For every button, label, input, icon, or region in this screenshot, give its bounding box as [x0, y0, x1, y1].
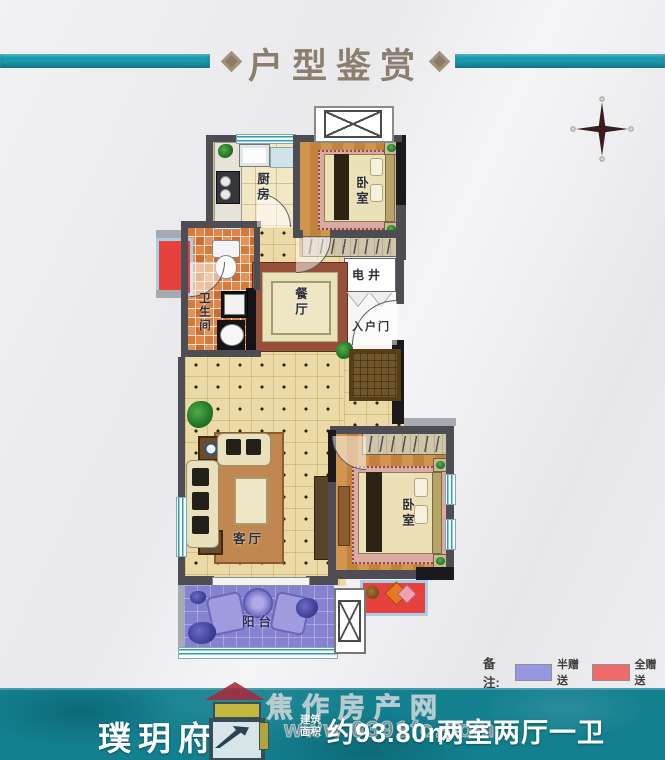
legend-swatch-full: [592, 664, 629, 681]
sofa-cushion: [192, 492, 209, 510]
entry-doormat: [349, 349, 401, 401]
bedroom-window: [445, 474, 456, 505]
wall: [293, 135, 300, 237]
stove-burner: [220, 176, 231, 187]
bedroom-tv-stand: [338, 486, 350, 546]
living-window: [176, 497, 187, 557]
room-label-entry-door: 入户门: [352, 318, 391, 334]
wall: [293, 230, 303, 238]
flue-x-box: [324, 110, 382, 138]
page-title: 户型鉴赏: [246, 38, 426, 89]
pillow: [370, 184, 383, 202]
wall: [181, 221, 261, 228]
washing-machine: [224, 294, 245, 315]
pillow: [414, 478, 428, 497]
room-label-bathroom: 卫生间: [196, 292, 212, 333]
wall: [181, 221, 188, 357]
kitchen-window: [236, 134, 296, 144]
diamond-ornament-right: [429, 51, 450, 72]
legend-note-label: 备注:: [483, 653, 510, 691]
header-teal-bar-left: [0, 54, 210, 68]
bed-headboard: [432, 472, 442, 554]
logo-bar: [213, 702, 261, 719]
bed-runner: [334, 154, 349, 220]
balcony-window: [178, 647, 338, 659]
pillow: [370, 158, 383, 176]
wall: [328, 482, 336, 582]
flue-x-box: [338, 600, 361, 642]
wall-black: [416, 567, 454, 580]
site-logo-house-icon: [203, 682, 267, 756]
header-teal-bar-right: [455, 54, 665, 68]
wall: [330, 426, 454, 434]
coffee-table: [234, 477, 268, 525]
sofa-cushion: [192, 516, 209, 534]
room-label-living: 客厅: [233, 528, 264, 547]
balcony-sliding-door: [212, 577, 310, 586]
project-name: 璞玥府: [98, 712, 218, 760]
stove-burner: [220, 189, 231, 200]
floorplan-poster: 户型鉴赏: [0, 0, 665, 760]
sofa-cushion: [246, 439, 261, 455]
bed-headboard: [385, 154, 395, 222]
layout-value: 两室两厅一卫: [437, 711, 605, 750]
bed-runner: [366, 472, 382, 552]
bedroom-window: [445, 519, 456, 550]
logo-tag: [259, 722, 269, 750]
logo-body: [209, 718, 265, 760]
wall: [184, 576, 214, 585]
room-label-utility-shaft: 电井: [352, 266, 384, 283]
wall: [396, 205, 406, 260]
room-label-dining: 餐厅: [291, 287, 310, 318]
bedroom-bottom-wardrobe: [362, 433, 448, 455]
sofa-cushion: [192, 468, 209, 486]
room-label-bedroom-top: 卧室: [352, 176, 371, 207]
wall: [396, 258, 404, 304]
wall: [306, 576, 338, 585]
tv-cabinet: [314, 476, 329, 560]
legend-label-full: 全赠送: [635, 656, 665, 688]
room-label-bedroom-bottom: 卧室: [398, 498, 417, 529]
kitchen-appliance: [270, 147, 294, 168]
diamond-ornament-left: [221, 51, 242, 72]
area-prefix: 建筑 面积: [300, 714, 321, 738]
wall-black: [396, 135, 406, 205]
wall: [254, 228, 260, 290]
wall: [404, 418, 456, 426]
room-label-kitchen: 厨房: [253, 172, 272, 203]
legend-label-half: 半赠送: [557, 656, 587, 688]
kitchen-sink: [239, 144, 270, 167]
area-prefix-line2: 面积: [300, 726, 321, 738]
north-compass-star-icon: [557, 84, 647, 174]
wall: [181, 350, 261, 357]
sofa-cushion: [226, 439, 241, 455]
bathroom-sink: [220, 324, 244, 346]
legend: 备注: 半赠送 全赠送: [483, 653, 665, 691]
legend-swatch-half: [515, 664, 552, 681]
wall: [206, 135, 213, 227]
shaft-door-flap: [347, 292, 369, 306]
room-label-balcony: 阳台: [242, 611, 275, 630]
area-prefix-line1: 建筑: [300, 714, 321, 726]
wall: [330, 230, 403, 238]
decor-ball: [366, 586, 379, 599]
logo-roof: [205, 682, 265, 700]
